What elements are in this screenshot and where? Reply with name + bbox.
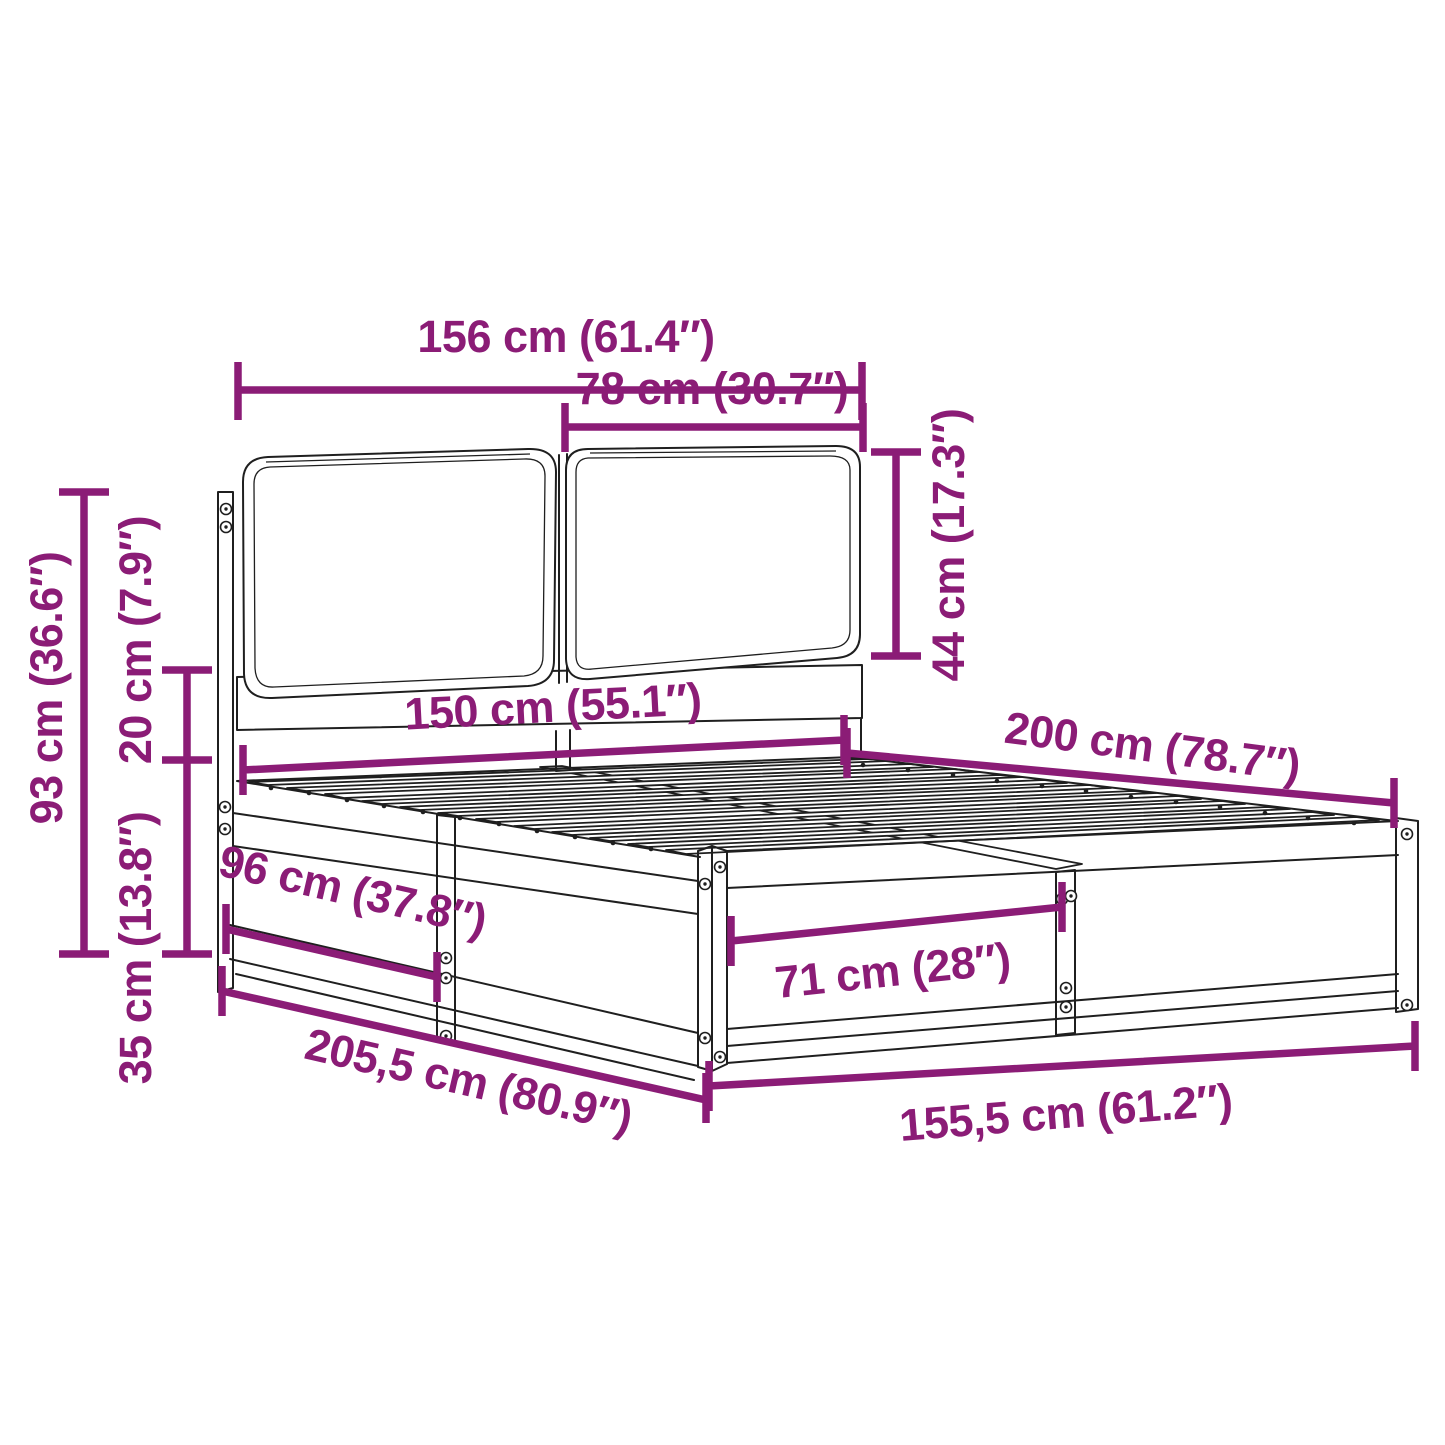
dim-label-headboard-height: 93 cm (36.6″) <box>21 552 72 825</box>
dim-label-headboard-gap: 20 cm (7.9″) <box>110 516 161 764</box>
dim-label-foot-section: 71 cm (28″) <box>773 933 1013 1008</box>
dimension-annotations: 156 cm (61.4″) 78 cm (30.7″) 44 cm (17.3… <box>21 311 1415 1151</box>
dim-label-side-section: 96 cm (37.8″) <box>214 835 491 946</box>
corner-post-right <box>1396 818 1418 1012</box>
dim-label-overall-length: 205,5 cm (80.9″) <box>300 1018 637 1143</box>
dim-label-cushion-width: 78 cm (30.7″) <box>576 363 849 414</box>
headboard-cushion-right <box>566 446 860 679</box>
dimension-line-base-height <box>162 760 212 954</box>
dim-label-cushion-height: 44 cm (17.3″) <box>923 409 974 682</box>
bed-dimension-diagram: 156 cm (61.4″) 78 cm (30.7″) 44 cm (17.3… <box>0 0 1445 1445</box>
dimension-line-headboard-gap <box>162 670 212 760</box>
diagram-page: 156 cm (61.4″) 78 cm (30.7″) 44 cm (17.3… <box>0 0 1445 1445</box>
dimension-line-cushion-height <box>871 452 921 656</box>
dim-label-overall-width: 155,5 cm (61.2″) <box>897 1074 1234 1151</box>
dim-label-base-height: 35 cm (13.8″) <box>110 812 161 1085</box>
headboard-cushion-left <box>243 449 556 698</box>
dim-label-headboard-width: 156 cm (61.4″) <box>417 311 714 362</box>
foot-panel <box>727 821 1398 1063</box>
